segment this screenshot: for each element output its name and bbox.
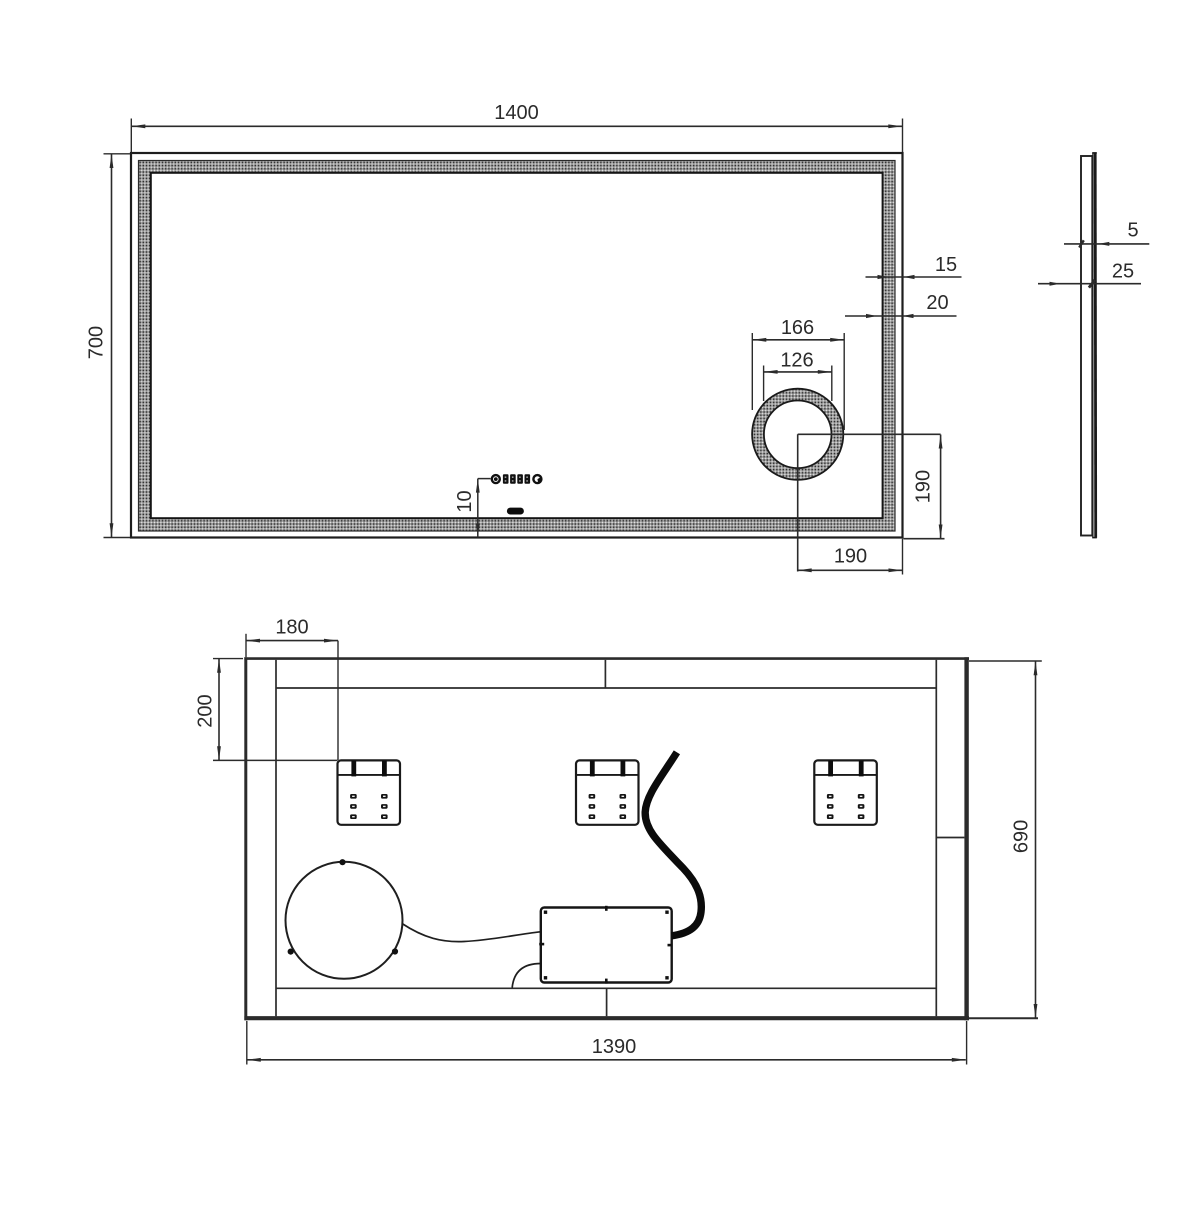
svg-text:126: 126	[780, 350, 813, 372]
svg-text:700: 700	[86, 326, 108, 359]
svg-text:10: 10	[454, 490, 476, 512]
svg-text:1390: 1390	[592, 1036, 637, 1058]
svg-text:200: 200	[195, 694, 217, 727]
svg-text:20: 20	[926, 292, 948, 314]
svg-text:190: 190	[834, 546, 867, 568]
svg-text:180: 180	[275, 617, 308, 639]
svg-text:190: 190	[913, 470, 935, 503]
svg-text:25: 25	[1112, 261, 1134, 283]
svg-text:690: 690	[1011, 820, 1033, 853]
svg-text:5: 5	[1127, 220, 1138, 242]
svg-text:15: 15	[935, 254, 957, 276]
svg-text:166: 166	[781, 317, 814, 339]
svg-text:1400: 1400	[494, 102, 539, 124]
